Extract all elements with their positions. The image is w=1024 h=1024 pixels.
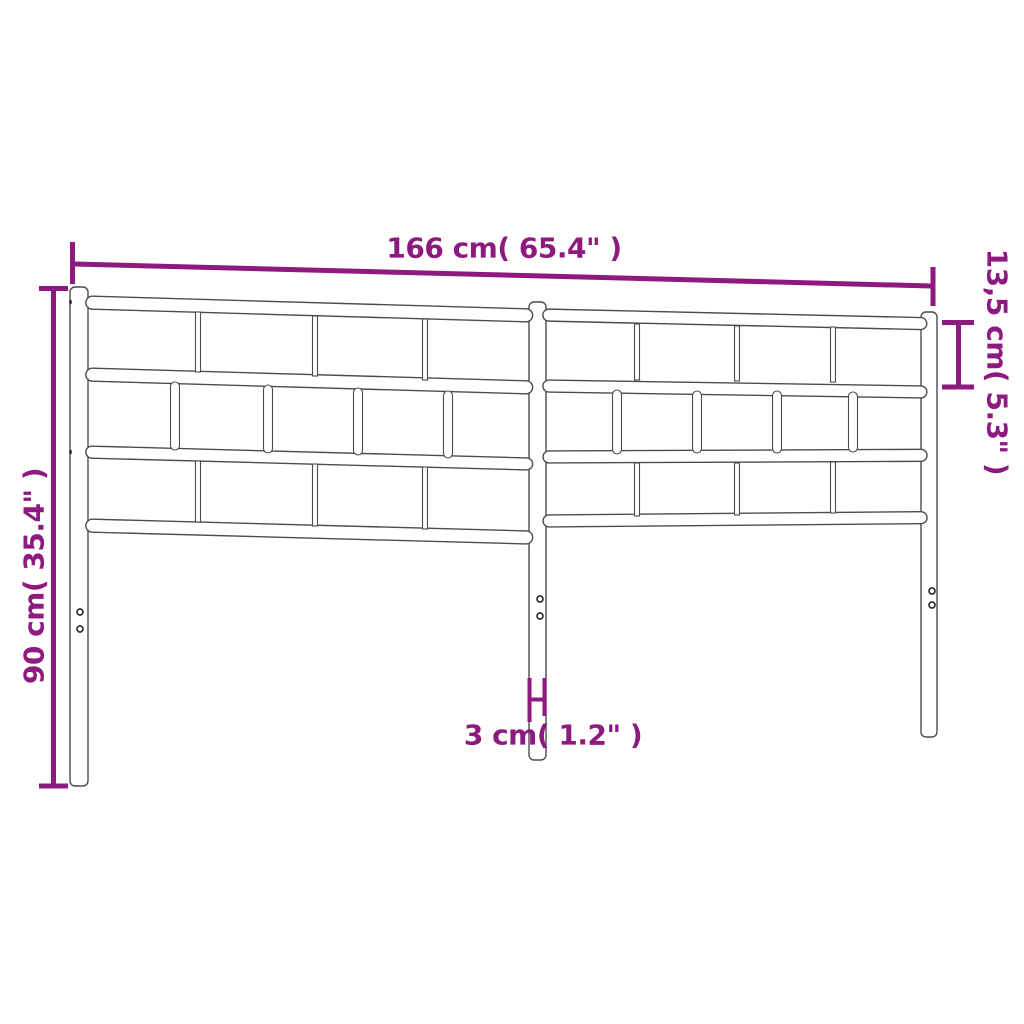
post-left xyxy=(70,287,88,786)
rail-3-right xyxy=(543,449,927,463)
panel-dividers xyxy=(171,312,858,529)
divider xyxy=(423,467,428,529)
spindle xyxy=(693,391,702,453)
spindle xyxy=(444,391,453,458)
product-dimension-diagram: 166 cm( 65.4" ) 13,5 cm( 5.3" ) 90 cm( 3… xyxy=(0,0,1024,1024)
panel-height-dimension-label: 13,5 cm( 5.3" ) xyxy=(981,249,1014,475)
width-dimension-label: 166 cm( 65.4" ) xyxy=(386,232,621,265)
divider xyxy=(735,326,740,381)
divider xyxy=(313,464,318,526)
rail-4-left xyxy=(86,519,533,544)
headboard-rails xyxy=(86,296,927,544)
spindle xyxy=(849,392,858,452)
divider xyxy=(313,316,318,376)
divider xyxy=(831,327,836,382)
rail-2-left xyxy=(86,368,533,394)
post-right xyxy=(921,312,937,737)
spindle xyxy=(264,385,273,453)
total-height-dimension-label: 90 cm( 35.4" ) xyxy=(18,468,51,684)
spindle xyxy=(354,388,363,455)
divider xyxy=(831,462,836,513)
rail-2-right xyxy=(543,380,927,398)
divider xyxy=(735,463,740,515)
spindle xyxy=(613,390,622,454)
mounting-hole xyxy=(537,596,543,602)
mounting-hole xyxy=(77,609,83,615)
mounting-hole xyxy=(537,613,543,619)
divider xyxy=(635,324,640,380)
post-width-dimension-label: 3 cm( 1.2" ) xyxy=(464,719,642,752)
spindle xyxy=(171,382,180,450)
rail-1-left xyxy=(86,296,533,322)
mounting-hole xyxy=(77,626,83,632)
divider xyxy=(423,319,428,380)
rail-3-left xyxy=(86,446,533,470)
mounting-hole xyxy=(929,602,935,608)
side-hole-dot xyxy=(69,450,72,455)
headboard-line-drawing xyxy=(0,0,1024,1024)
divider xyxy=(635,463,640,516)
mounting-hole xyxy=(929,588,935,594)
spindle xyxy=(773,391,782,453)
side-hole-dot xyxy=(69,300,72,305)
panel-height-dimension-line xyxy=(942,323,974,388)
divider xyxy=(196,312,201,372)
divider xyxy=(196,461,201,522)
